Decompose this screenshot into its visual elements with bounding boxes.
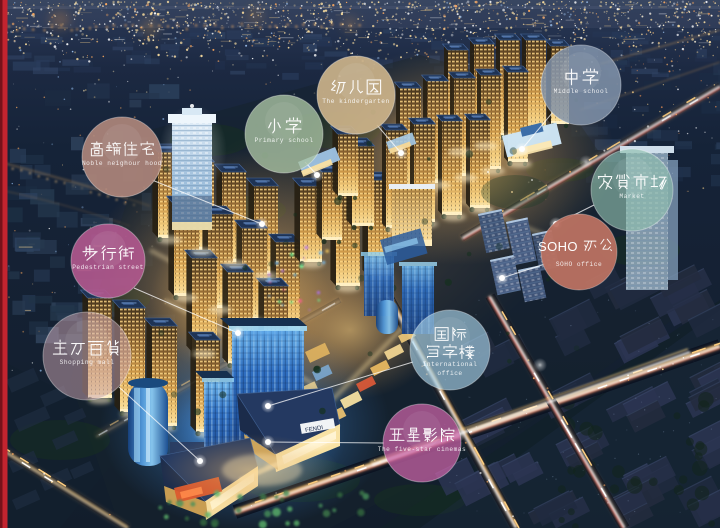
- svg-text:Pedestrian street: Pedestrian street: [72, 264, 144, 271]
- svg-text:The kindergarten: The kindergarten: [322, 98, 389, 105]
- svg-text:SOHO office: SOHO office: [556, 261, 602, 268]
- svg-text:Noble neighour hood: Noble neighour hood: [82, 160, 162, 167]
- svg-text:International: International: [423, 361, 478, 368]
- svg-text:Market: Market: [619, 193, 644, 200]
- svg-text:SOHO: SOHO: [538, 239, 578, 254]
- svg-text:Middle school: Middle school: [554, 88, 609, 95]
- svg-text:Shopping mall: Shopping mall: [60, 359, 115, 366]
- svg-text:The five-star cinemas: The five-star cinemas: [378, 446, 466, 453]
- svg-text:office: office: [437, 370, 462, 377]
- svg-text:Primary school: Primary school: [255, 137, 314, 144]
